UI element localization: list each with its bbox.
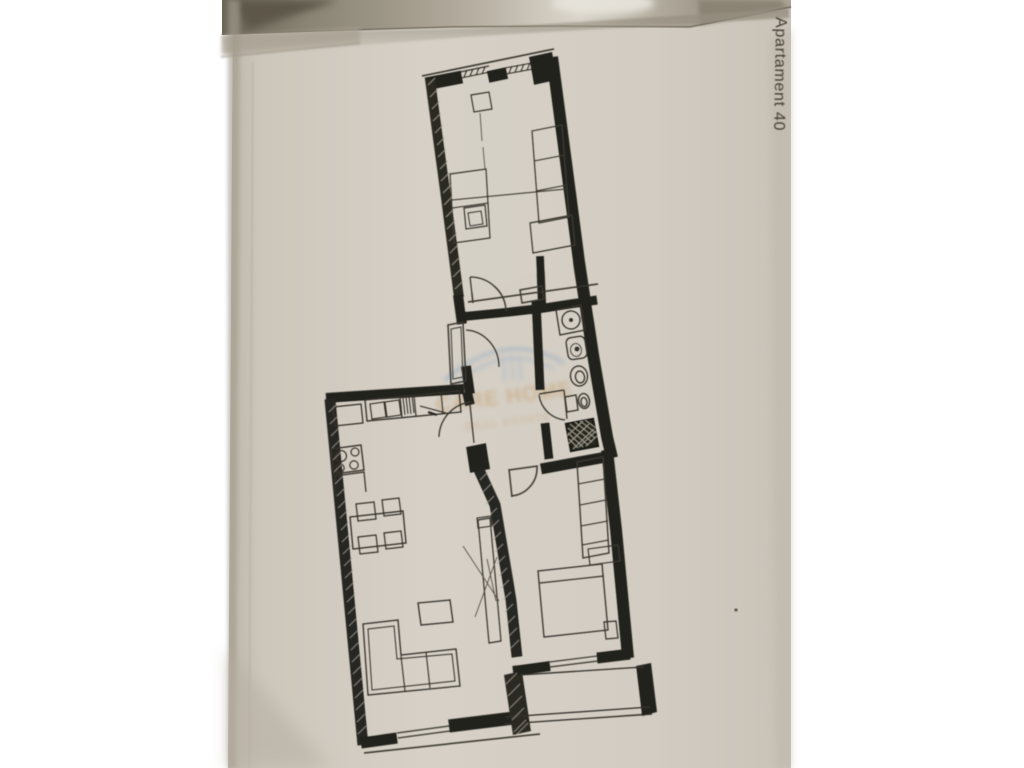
svg-text:Apartament 40: Apartament 40 <box>770 17 789 131</box>
